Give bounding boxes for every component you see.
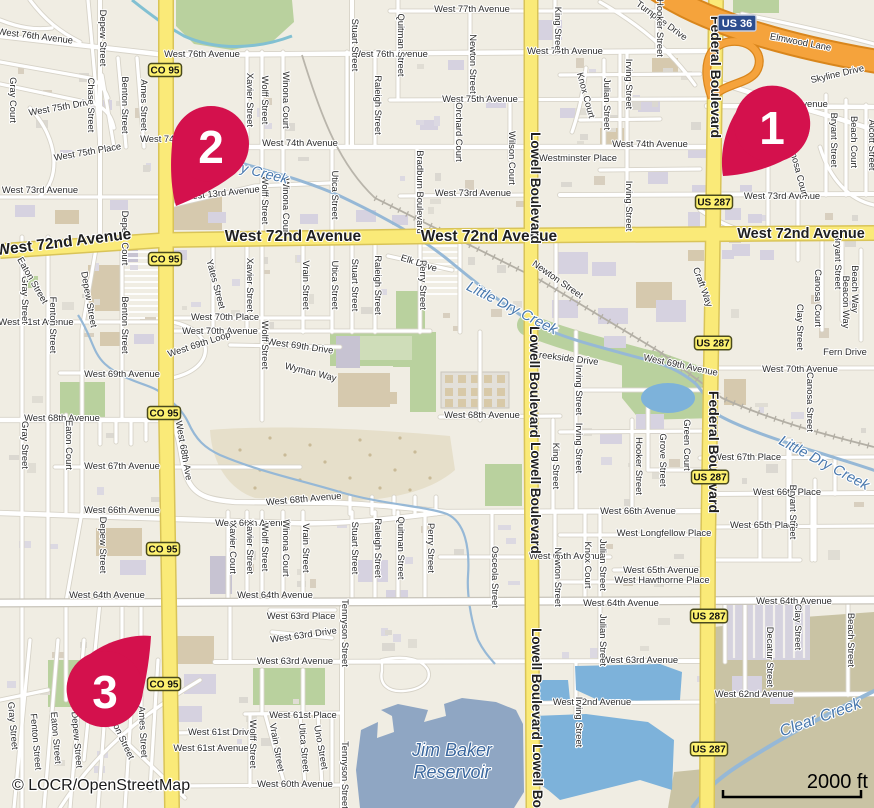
svg-text:Westminster Place: Westminster Place [539,152,617,163]
svg-text:Quitman Street: Quitman Street [396,516,407,579]
svg-text:Xavier Court: Xavier Court [228,522,239,574]
svg-text:CO 95: CO 95 [151,254,180,265]
svg-text:Newton Street: Newton Street [468,34,479,94]
svg-text:Vrain Street: Vrain Street [301,523,312,573]
svg-text:© LOCR/OpenStreetMap: © LOCR/OpenStreetMap [12,777,190,794]
svg-text:West 66th Place: West 66th Place [753,486,821,497]
svg-text:Ames Street: Ames Street [139,79,150,131]
svg-text:Federal Boulevard: Federal Boulevard [708,16,724,138]
svg-text:Alcott Street: Alcott Street [867,119,874,170]
svg-text:Beach Court: Beach Court [849,116,860,169]
svg-text:West Hawthorne Place: West Hawthorne Place [614,574,709,585]
svg-text:Raleigh Street: Raleigh Street [373,518,384,578]
svg-text:Wilson Court: Wilson Court [507,131,518,185]
svg-text:West 63rd Avenue: West 63rd Avenue [602,654,678,665]
svg-text:West 68th Avenue: West 68th Avenue [444,409,520,420]
svg-text:West 77th Avenue: West 77th Avenue [434,3,510,14]
svg-text:Utica Street: Utica Street [330,261,341,310]
svg-text:King Street: King Street [553,7,564,54]
svg-text:Jim Baker: Jim Baker [411,740,493,760]
svg-text:Fenton Street: Fenton Street [48,297,59,354]
svg-text:West 76th Avenue: West 76th Avenue [527,45,603,56]
svg-text:West 67th Avenue: West 67th Avenue [84,460,160,471]
svg-text:Hooker Street: Hooker Street [634,437,645,495]
svg-text:Grove Street: Grove Street [658,433,669,487]
svg-text:CO 95: CO 95 [150,679,179,690]
svg-text:CO 95: CO 95 [149,544,178,555]
svg-text:Knox Court: Knox Court [583,542,594,589]
svg-text:Stuart Street: Stuart Street [350,259,361,312]
svg-text:Canosa Street: Canosa Street [805,372,816,432]
svg-text:Eaton Court: Eaton Court [64,420,75,470]
svg-text:Winona Court: Winona Court [281,71,292,129]
svg-text:CO 95: CO 95 [151,65,180,76]
svg-text:Irving Street: Irving Street [624,59,635,110]
svg-text:Federal Boulevard: Federal Boulevard [706,391,722,513]
svg-text:Vrain Street: Vrain Street [301,260,312,310]
svg-text:West 74th Avenue: West 74th Avenue [612,138,688,149]
svg-text:Irving Street: Irving Street [574,697,585,748]
svg-text:Julian Street: Julian Street [598,614,609,667]
svg-text:Chase Street: Chase Street [86,78,97,133]
svg-text:Lowell Boulevard: Lowell Boulevard [527,326,542,438]
svg-text:Wolff Street: Wolff Street [248,720,259,769]
svg-text:West 61st Avenue: West 61st Avenue [173,742,248,753]
svg-text:Quitman Street: Quitman Street [396,13,407,76]
svg-text:Beacon Way: Beacon Way [841,276,852,329]
svg-text:Depew Street: Depew Street [98,517,109,574]
svg-text:West 70th Avenue: West 70th Avenue [762,363,838,374]
svg-text:Julian Street: Julian Street [602,78,613,131]
svg-text:Beach Street: Beach Street [846,613,857,668]
svg-text:Lowell Boulevard: Lowell Boulevard [529,628,544,740]
svg-text:Clay Street: Clay Street [795,304,806,351]
svg-text:King Street: King Street [551,443,562,490]
svg-text:Winona Court: Winona Court [281,519,292,577]
svg-text:Xavier Street: Xavier Street [245,73,256,128]
svg-text:Raleigh Street: Raleigh Street [373,255,384,315]
svg-text:Wolff Street: Wolff Street [260,523,271,572]
svg-text:US 287: US 287 [692,744,726,755]
svg-text:Clay Street: Clay Street [793,604,804,651]
svg-text:West 63rd Avenue: West 63rd Avenue [257,655,333,666]
svg-text:West 70th Place: West 70th Place [191,311,259,322]
svg-text:1: 1 [759,102,785,154]
svg-text:Irving Street: Irving Street [574,365,585,416]
svg-text:Hooker Street: Hooker Street [655,0,666,57]
svg-text:Canosa Court: Canosa Court [813,269,824,327]
svg-text:Irving Street: Irving Street [574,423,585,474]
svg-text:West 71st Avenue: West 71st Avenue [0,316,74,327]
svg-text:West 64th Avenue: West 64th Avenue [69,589,145,600]
svg-text:Depew Street: Depew Street [98,10,109,67]
svg-text:Tennyson Street: Tennyson Street [340,599,351,667]
svg-text:West 73rd Avenue: West 73rd Avenue [2,184,78,195]
svg-text:West 61st Drive: West 61st Drive [188,726,254,737]
svg-text:2000 ft: 2000 ft [807,771,869,793]
svg-text:Julian Street: Julian Street [598,539,609,592]
svg-text:West 69th Avenue: West 69th Avenue [84,368,160,379]
svg-text:Stuart Street: Stuart Street [350,522,361,575]
svg-text:US 287: US 287 [693,472,727,483]
svg-text:West 63rd Place: West 63rd Place [267,610,336,621]
svg-text:West 61st Place: West 61st Place [269,709,337,720]
svg-text:2: 2 [198,121,224,173]
svg-text:West 73rd Avenue: West 73rd Avenue [435,187,511,198]
svg-text:Xavier Street: Xavier Street [245,520,256,575]
svg-text:West 72nd Avenue: West 72nd Avenue [737,226,865,242]
svg-text:Orchard Court: Orchard Court [454,102,465,162]
svg-text:Perry Street: Perry Street [418,260,429,310]
svg-text:West 74th Avenue: West 74th Avenue [262,137,338,148]
svg-text:West 67th Place: West 67th Place [713,451,781,462]
svg-text:US 36: US 36 [722,18,753,30]
svg-text:West 76th Avenue: West 76th Avenue [164,48,240,59]
svg-text:West 68th Avenue: West 68th Avenue [24,412,100,423]
svg-text:US 287: US 287 [692,611,726,622]
svg-text:West 72nd Avenue: West 72nd Avenue [225,228,362,245]
svg-text:Bradburn Boulevard: Bradburn Boulevard [415,150,426,233]
svg-text:Decatur Street: Decatur Street [765,627,776,688]
svg-text:Tennyson Street: Tennyson Street [340,741,351,808]
svg-text:Irving Street: Irving Street [624,181,635,232]
svg-text:West 64th Avenue: West 64th Avenue [237,589,313,600]
svg-text:Fern Drive: Fern Drive [823,346,867,357]
svg-text:West 66th Avenue: West 66th Avenue [600,505,676,516]
svg-text:Wolff Street: Wolff Street [260,76,271,125]
svg-text:Bryant Street: Bryant Street [829,113,840,168]
svg-text:Xavier Street: Xavier Street [245,258,256,313]
svg-text:Raleigh Street: Raleigh Street [373,75,384,135]
svg-text:West 62nd Avenue: West 62nd Avenue [553,696,631,707]
svg-text:Green Court: Green Court [682,419,693,471]
svg-text:Lowell Boulevard: Lowell Boulevard [528,132,543,244]
svg-text:Wolff Street: Wolff Street [260,176,271,225]
svg-text:West 64th Avenue: West 64th Avenue [583,597,659,608]
svg-text:US 287: US 287 [697,197,731,208]
svg-text:3: 3 [92,666,118,718]
svg-text:Bryant Street: Bryant Street [788,485,799,540]
svg-text:Lowell Boulevard: Lowell Boulevard [528,442,543,554]
svg-text:West 62nd Avenue: West 62nd Avenue [715,688,793,699]
svg-text:Gray Court: Gray Court [8,77,19,123]
svg-text:Benton Street: Benton Street [120,76,131,134]
svg-text:Utica Street: Utica Street [330,171,341,220]
svg-text:West 65th Place: West 65th Place [730,519,798,530]
svg-text:Newton Street: Newton Street [553,547,564,607]
svg-text:West 75th Avenue: West 75th Avenue [442,93,518,104]
svg-text:West Longfellow Place: West Longfellow Place [617,527,712,538]
svg-text:Reservoir: Reservoir [413,762,491,782]
svg-text:Benton Street: Benton Street [120,296,131,354]
svg-text:West 66th Avenue: West 66th Avenue [84,504,160,515]
svg-text:CO 95: CO 95 [150,408,179,419]
svg-text:Osceola Street: Osceola Street [490,546,501,608]
svg-text:Gray Street: Gray Street [20,421,31,469]
svg-text:Wolff Street: Wolff Street [260,321,271,370]
svg-text:West 60th Avenue: West 60th Avenue [257,778,333,789]
svg-text:West 76th Avenue: West 76th Avenue [352,48,428,59]
svg-text:Lowell Boulevard: Lowell Boulevard [530,744,545,808]
svg-text:Stuart Street: Stuart Street [350,19,361,72]
svg-text:Perry Street: Perry Street [426,523,437,573]
svg-text:US 287: US 287 [696,338,730,349]
